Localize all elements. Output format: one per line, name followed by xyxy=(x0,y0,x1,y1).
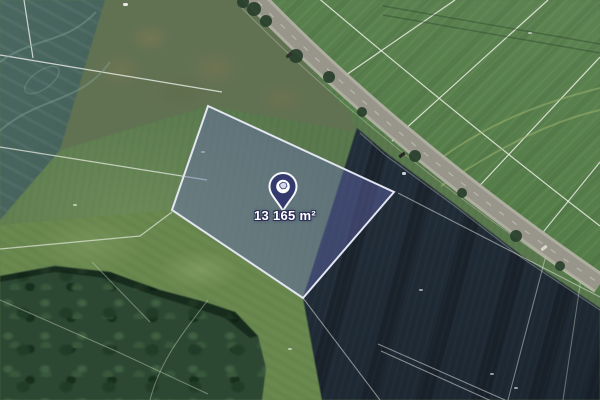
cadastral-line xyxy=(303,298,380,400)
cadastral-line xyxy=(540,162,600,236)
cadastral-line xyxy=(0,55,222,92)
field-edge-line xyxy=(360,133,600,310)
roadside-tree xyxy=(357,107,367,117)
parcel-number-mark xyxy=(288,348,292,350)
cadastral-line xyxy=(563,265,583,400)
tractor-track xyxy=(428,88,600,168)
cadastral-line xyxy=(0,147,207,180)
roadside-tree xyxy=(247,2,261,16)
parcel-number-mark xyxy=(490,373,494,375)
parcel-number-mark xyxy=(419,289,423,291)
forest-trail xyxy=(0,300,208,394)
roadside-tree xyxy=(510,230,522,242)
power-line-shadow xyxy=(383,6,600,44)
roadside-tree xyxy=(323,71,335,83)
roadside-tree xyxy=(555,261,565,271)
cadastral-line xyxy=(333,0,455,84)
tractor-track-loop xyxy=(20,61,63,99)
white-speck xyxy=(402,172,406,175)
roadside-tree xyxy=(457,188,467,198)
cadastral-line xyxy=(24,0,33,58)
map-imagery-overlay xyxy=(0,0,600,400)
forest-trail xyxy=(92,262,150,322)
roadside-tree xyxy=(289,49,303,63)
white-speck xyxy=(123,3,128,6)
map-canvas[interactable]: 13 165 m² xyxy=(0,0,600,400)
parcel-area-label: 13 165 m² xyxy=(220,208,350,226)
parcel-number-mark xyxy=(528,32,532,34)
power-line-shadow xyxy=(383,15,600,53)
roadside-tree xyxy=(260,15,272,27)
parcel-number-mark xyxy=(73,204,77,206)
cadastral-line xyxy=(508,240,550,400)
cadastral-line xyxy=(378,344,505,400)
cadastral-line xyxy=(0,212,172,249)
forest-trail xyxy=(150,300,208,400)
tractor-track xyxy=(0,62,110,136)
cadastral-line xyxy=(381,351,498,400)
area-glyph-icon xyxy=(280,182,287,189)
parcel-number-mark xyxy=(514,387,518,389)
roadside-tree xyxy=(409,150,421,162)
roadside-tree xyxy=(237,0,249,8)
